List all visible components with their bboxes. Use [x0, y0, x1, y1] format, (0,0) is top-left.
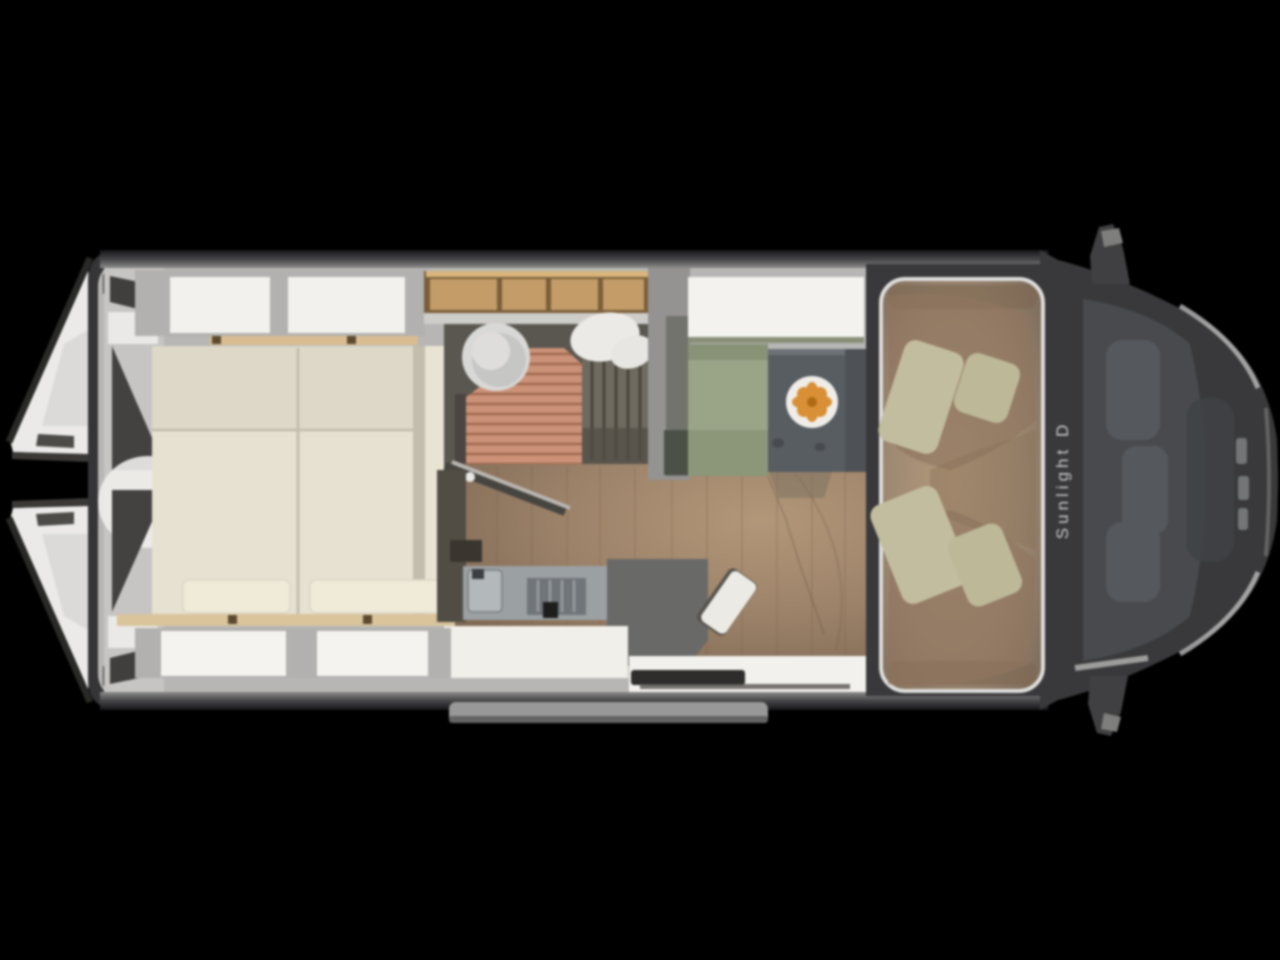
svg-text:Sunlight D: Sunlight D	[1053, 421, 1072, 539]
